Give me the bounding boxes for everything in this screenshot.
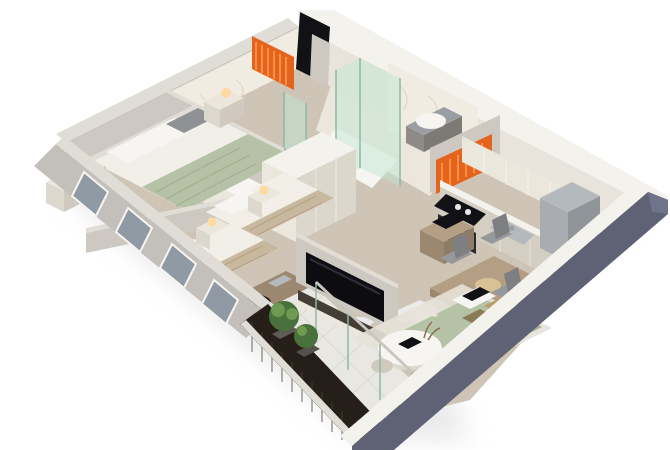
lamp-glow-bed-a: [260, 186, 269, 195]
sink-basin: [416, 113, 446, 129]
apartment-3d-scene: [0, 0, 670, 450]
side-pouf: [371, 359, 393, 373]
faucet: [510, 226, 515, 231]
lamp-glow-right: [221, 88, 231, 98]
burner-2: [465, 209, 471, 215]
burner-1: [455, 204, 461, 210]
lamp-glow-bed-b: [208, 218, 217, 227]
entry-door-opening: [310, 34, 330, 88]
shower2-glass-right: [360, 58, 400, 186]
floorplan-render: [0, 0, 670, 450]
